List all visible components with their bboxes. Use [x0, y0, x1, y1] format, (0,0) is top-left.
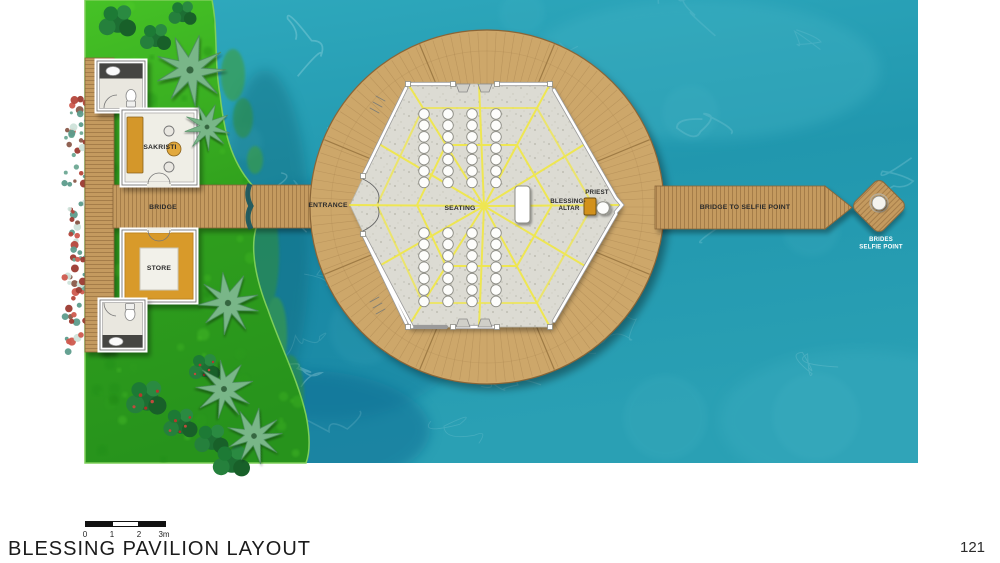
page-title: BLESSING PAVILION LAYOUT	[8, 538, 311, 561]
bridge-west	[113, 184, 315, 229]
label-blessing-altar-2: ALTAR	[558, 205, 579, 212]
scale-segment	[85, 521, 112, 527]
scale-segment	[112, 521, 139, 527]
label-priest: PRIEST	[585, 189, 609, 196]
room-toilet-south	[100, 300, 145, 350]
page-number: 121	[960, 539, 985, 556]
label-blessing-altar-1: BLESSING-	[550, 198, 586, 205]
label-brides-selfie-2: SELFIE POINT	[859, 245, 903, 251]
label-seating: SEATING	[444, 205, 475, 212]
wc-south	[125, 304, 135, 321]
wc-north	[126, 90, 136, 108]
label-bridge: BRIDGE	[149, 204, 177, 211]
priest-chair	[597, 202, 611, 215]
label-bridge-to-selfie: BRIDGE TO SELFIE POINT	[700, 204, 791, 211]
selfie-point-table	[872, 196, 886, 210]
blessing-pavilion-plan-page: BRIDGE SAKRISTI STORE ENTRANCE SEATING B…	[0, 0, 1000, 563]
scale-segment	[139, 521, 166, 527]
room-toilet-north	[97, 61, 145, 111]
sink-north	[106, 67, 120, 76]
site-plan-drawing: BRIDGE SAKRISTI STORE ENTRANCE SEATING B…	[0, 0, 1000, 563]
sakristi-counter	[127, 117, 143, 173]
sakristi-chair	[164, 162, 174, 172]
label-brides-selfie-1: BRIDES	[869, 237, 893, 243]
sink-south	[109, 337, 123, 345]
blessing-altar-table	[584, 198, 596, 215]
label-entrance: ENTRANCE	[308, 202, 348, 209]
scale-bar	[85, 521, 166, 527]
sakristi-chair	[164, 126, 174, 136]
ceremony-table	[515, 186, 530, 223]
label-sakristi: SAKRISTI	[143, 144, 176, 151]
label-store: STORE	[147, 265, 172, 272]
